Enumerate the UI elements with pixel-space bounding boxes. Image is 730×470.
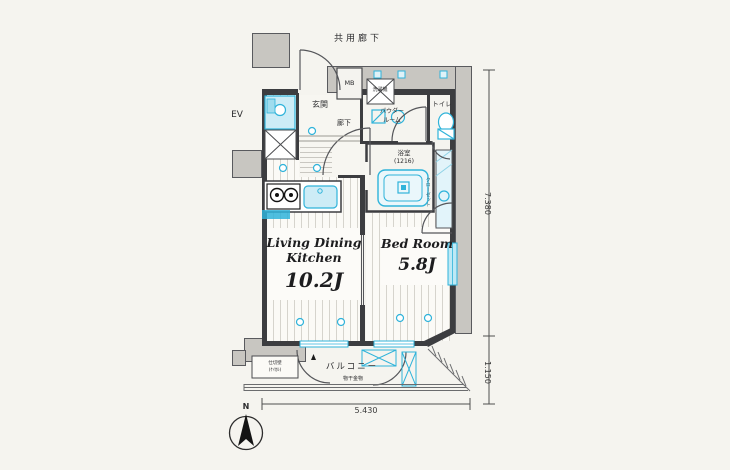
ldk-balcony-window	[300, 341, 348, 347]
entrance-step	[299, 136, 360, 141]
common-corridor-label: 共用廊下	[318, 34, 398, 44]
fix-marker	[311, 354, 316, 360]
width-dimension-label: 5.430	[336, 406, 396, 415]
sink-icon	[304, 186, 337, 208]
bedroom-size-label: 5.8J	[398, 256, 436, 276]
bedroom-room-label: Bed Room 5.8J	[381, 227, 453, 285]
bathroom-size-label: (1216)	[386, 159, 422, 166]
bedroom-name-label: Bed Room	[381, 237, 453, 251]
partition-label-1: 仕切壁	[256, 361, 294, 366]
elevator-label: EV	[224, 110, 250, 120]
ldk-room-label: Living Dining Kitchen 10.2J	[268, 228, 360, 300]
closet	[436, 150, 452, 228]
compass-icon	[230, 414, 263, 450]
balcony-depth-dimension-label: 1.150	[483, 352, 492, 392]
kitchen-note-tag	[262, 210, 290, 219]
compass-north-label: N	[240, 402, 252, 411]
floorplan-canvas: { "labels": { "common_corridor": "共用廊下",…	[0, 0, 730, 470]
powder-room-label-2: ルーム	[374, 118, 410, 125]
partition-label-2: (ｹｲｶﾙ)	[256, 368, 294, 373]
ldk-name-line1: Living Dining	[267, 236, 362, 250]
closet-label: クローゼット	[424, 162, 430, 222]
ldk-name-line2: Kitchen	[286, 251, 341, 265]
meter-box-label: MB	[337, 80, 362, 87]
refrigerator-space-icon	[265, 130, 296, 159]
plan-linework	[0, 0, 730, 470]
toilet-label: トイレ	[430, 101, 454, 108]
utility-icons	[374, 71, 447, 78]
kitchen-sink-unit-icon	[265, 96, 295, 129]
entrance-door-arc	[300, 50, 340, 90]
hallway-label: 廊下	[330, 119, 358, 127]
powder-room-label-1: パウダー	[374, 109, 410, 116]
balcony-label: バルコニー	[320, 363, 384, 373]
ldk-size-label: 10.2J	[285, 269, 343, 292]
drying-fixture-label: 物干金物	[336, 377, 370, 383]
bathroom-label: 浴室	[386, 150, 422, 157]
kitchen-counter	[262, 181, 341, 219]
bedroom-balcony-window	[374, 341, 414, 347]
height-dimension-label: 7.380	[483, 178, 492, 228]
balcony-partition-box	[252, 356, 298, 378]
toilet-icon	[438, 113, 454, 139]
entrance-label: 玄関	[300, 100, 340, 109]
washing-machine-label: 洗濯機	[366, 88, 394, 94]
bathtub-icon	[378, 170, 428, 206]
